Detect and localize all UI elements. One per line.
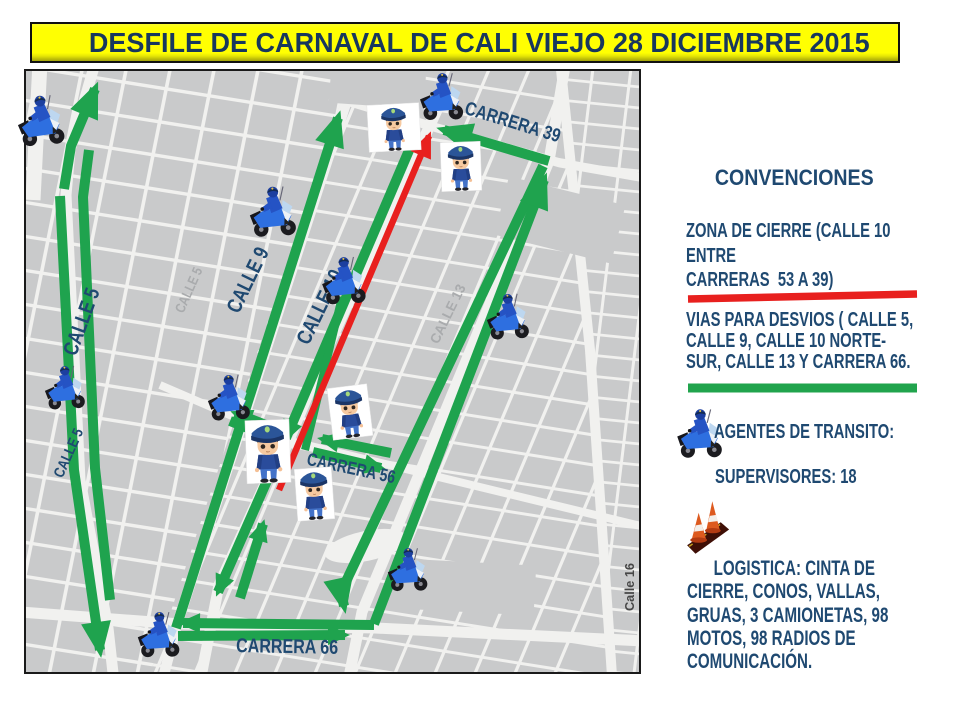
- svg-text:Calle 16: Calle 16: [622, 563, 637, 611]
- svg-text:CARRERA 66: CARRERA 66: [236, 635, 338, 659]
